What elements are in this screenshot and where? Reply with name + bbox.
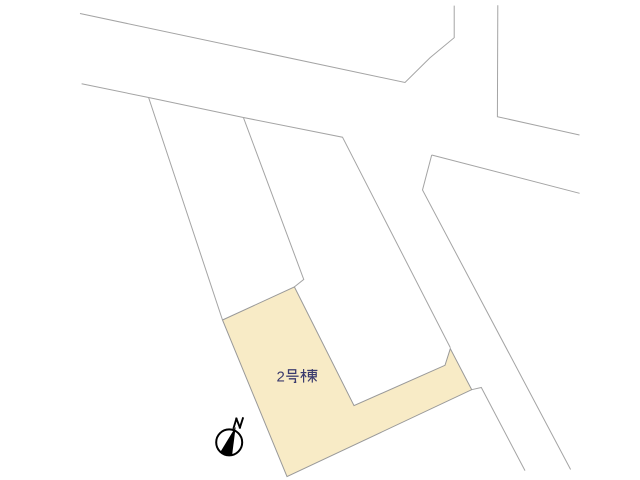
svg-text:2: 2: [277, 368, 285, 385]
